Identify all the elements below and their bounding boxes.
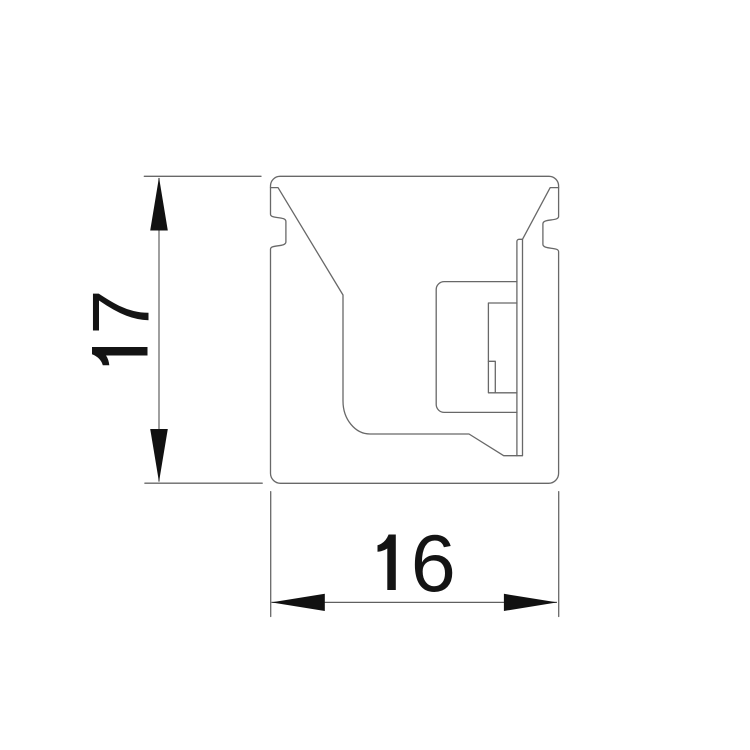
- svg-text:6: 6: [411, 519, 456, 609]
- svg-text:7: 7: [77, 290, 167, 335]
